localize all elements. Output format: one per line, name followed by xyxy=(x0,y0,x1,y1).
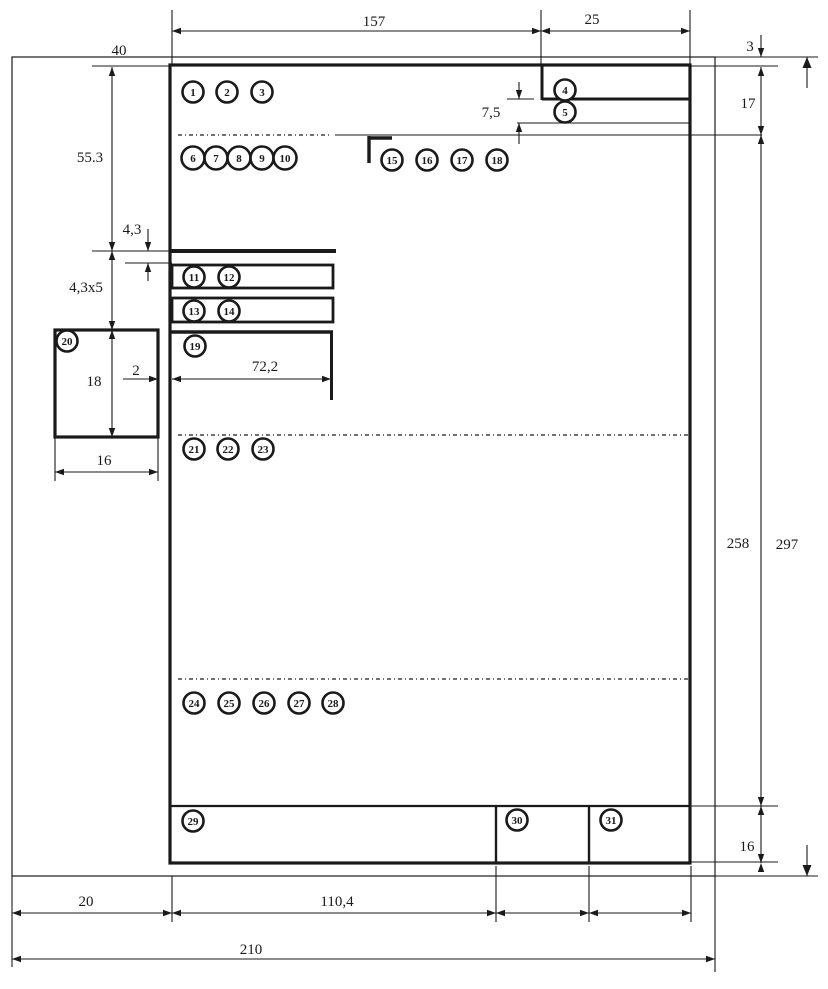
dim-label-header-17: 17 xyxy=(741,96,757,112)
callout-number: 9 xyxy=(259,153,265,165)
callout-number: 17 xyxy=(457,155,469,167)
dimension-arrow xyxy=(149,469,158,475)
callout-number: 10 xyxy=(280,153,292,165)
dimension-arrow xyxy=(758,126,764,135)
dimension-arrow xyxy=(541,28,550,34)
callout-number: 14 xyxy=(224,306,236,318)
dimension-arrow xyxy=(589,910,598,916)
callout-number: 13 xyxy=(189,306,201,318)
dimension-arrow xyxy=(322,376,331,382)
dim-label-notch-7-5: 7,5 xyxy=(482,105,501,121)
dim-label-top-width-25: 25 xyxy=(585,12,600,28)
callout-5: 5 xyxy=(555,102,576,123)
dim-label-page-297: 297 xyxy=(776,537,799,553)
callout-number: 22 xyxy=(223,444,235,456)
callout-29: 29 xyxy=(183,811,204,832)
callout-18: 18 xyxy=(487,150,508,171)
callout-number: 20 xyxy=(62,336,74,348)
dim-label-indent-72-2: 72,2 xyxy=(252,359,278,375)
callout-number: 28 xyxy=(328,698,340,710)
dimension-arrow xyxy=(109,251,115,260)
callout-number: 21 xyxy=(189,444,200,456)
callout-21: 21 xyxy=(184,439,205,460)
dim-label-bottom-210: 210 xyxy=(240,942,263,958)
dimension-arrow xyxy=(758,863,764,872)
callout-12: 12 xyxy=(219,267,240,288)
dimension-arrow xyxy=(12,910,21,916)
callout-number: 27 xyxy=(294,698,306,710)
callout-19: 19 xyxy=(185,336,206,357)
callout-number: 29 xyxy=(188,816,200,828)
dim-label-top-width-157: 157 xyxy=(363,14,386,30)
callout-number: 12 xyxy=(224,272,236,284)
callout-number: 2 xyxy=(224,87,230,99)
dimension-arrow xyxy=(172,910,181,916)
dim-label-row-4-3: 4,3 xyxy=(123,222,142,238)
inner-frame xyxy=(170,65,690,863)
callout-1: 1 xyxy=(183,82,204,103)
callout-number: 18 xyxy=(492,155,504,167)
callout-30: 30 xyxy=(507,810,528,831)
callout-9: 9 xyxy=(251,147,274,170)
callout-3: 3 xyxy=(252,82,273,103)
callout-number: 5 xyxy=(562,107,568,119)
callout-15: 15 xyxy=(382,150,403,171)
callout-number: 8 xyxy=(236,153,242,165)
dimension-arrow xyxy=(145,263,151,272)
callout-number: 31 xyxy=(606,815,617,827)
callout-number: 30 xyxy=(512,815,524,827)
dimension-arrow xyxy=(55,469,64,475)
callout-2: 2 xyxy=(217,82,238,103)
callout-27: 27 xyxy=(289,693,310,714)
callout-26: 26 xyxy=(254,693,275,714)
callout-25: 25 xyxy=(219,693,240,714)
callout-number: 23 xyxy=(258,444,270,456)
page-height-marker-bottom xyxy=(803,865,812,876)
dimension-arrow xyxy=(758,797,764,806)
dimension-arrow xyxy=(487,910,496,916)
dim-label-left-40: 40 xyxy=(112,43,127,59)
callout-10: 10 xyxy=(274,147,297,170)
callout-31: 31 xyxy=(601,810,622,831)
callout-23: 23 xyxy=(253,439,274,460)
dimension-arrow xyxy=(172,28,181,34)
callout-number: 15 xyxy=(387,155,399,167)
callout-11: 11 xyxy=(184,267,205,288)
callout-number: 16 xyxy=(422,155,434,167)
paper-border xyxy=(12,57,715,876)
page-height-marker-top xyxy=(803,57,812,68)
callout-13: 13 xyxy=(184,301,205,322)
dimension-arrow xyxy=(12,956,21,962)
dim-label-rows-4-3x5: 4,3x5 xyxy=(69,280,103,296)
callout-number: 11 xyxy=(189,272,199,284)
dim-label-body-258: 258 xyxy=(727,536,750,552)
dimension-arrow xyxy=(532,28,541,34)
dim-label-gap-2: 2 xyxy=(132,363,140,379)
dim-label-left-55-3: 55.3 xyxy=(77,150,103,166)
callout-8: 8 xyxy=(228,147,251,170)
dim-label-footer-16: 16 xyxy=(740,839,756,855)
callout-number: 3 xyxy=(259,87,265,99)
dimension-arrow xyxy=(580,910,589,916)
dimension-arrow xyxy=(758,135,764,144)
callout-7: 7 xyxy=(205,147,228,170)
callout-20: 20 xyxy=(57,331,78,352)
callout-4: 4 xyxy=(555,80,576,101)
callout-number: 6 xyxy=(190,153,196,165)
dimension-arrow xyxy=(758,67,764,76)
callout-number: 24 xyxy=(189,698,201,710)
callout-number: 4 xyxy=(562,85,568,97)
dimension-arrow xyxy=(109,67,115,76)
dimension-arrow xyxy=(145,242,151,251)
callout-6: 6 xyxy=(182,147,205,170)
dimensioned-layout-drawing: 1234567891011121314151617181920212223242… xyxy=(0,0,828,989)
dimension-arrow xyxy=(681,28,690,34)
dim-label-bottom-20: 20 xyxy=(79,894,94,910)
dimension-arrow xyxy=(163,910,172,916)
dim-label-box-18: 18 xyxy=(87,374,102,390)
dimension-arrow xyxy=(516,90,522,99)
dimension-arrow xyxy=(758,806,764,815)
dimension-arrow xyxy=(172,376,181,382)
dimension-arrow xyxy=(682,910,691,916)
dim-label-bottom-110-4: 110,4 xyxy=(320,894,354,910)
dimension-arrow xyxy=(496,910,505,916)
dimension-arrow xyxy=(758,48,764,57)
callout-16: 16 xyxy=(417,150,438,171)
callout-28: 28 xyxy=(323,693,344,714)
callout-number: 7 xyxy=(213,153,219,165)
dimension-arrow xyxy=(706,956,715,962)
dim-label-margin-3: 3 xyxy=(746,39,754,55)
dimension-arrow xyxy=(516,123,522,132)
callout-24: 24 xyxy=(184,693,205,714)
callout-17: 17 xyxy=(452,150,473,171)
technical-drawing-page: 1234567891011121314151617181920212223242… xyxy=(0,0,828,989)
callout-14: 14 xyxy=(219,301,240,322)
dimension-arrow xyxy=(109,242,115,251)
callout-number: 1 xyxy=(190,87,196,99)
callout-22: 22 xyxy=(218,439,239,460)
callout-number: 25 xyxy=(224,698,236,710)
dim-label-box-16: 16 xyxy=(97,453,113,469)
callout-number: 19 xyxy=(190,341,202,353)
callout-number: 26 xyxy=(259,698,271,710)
